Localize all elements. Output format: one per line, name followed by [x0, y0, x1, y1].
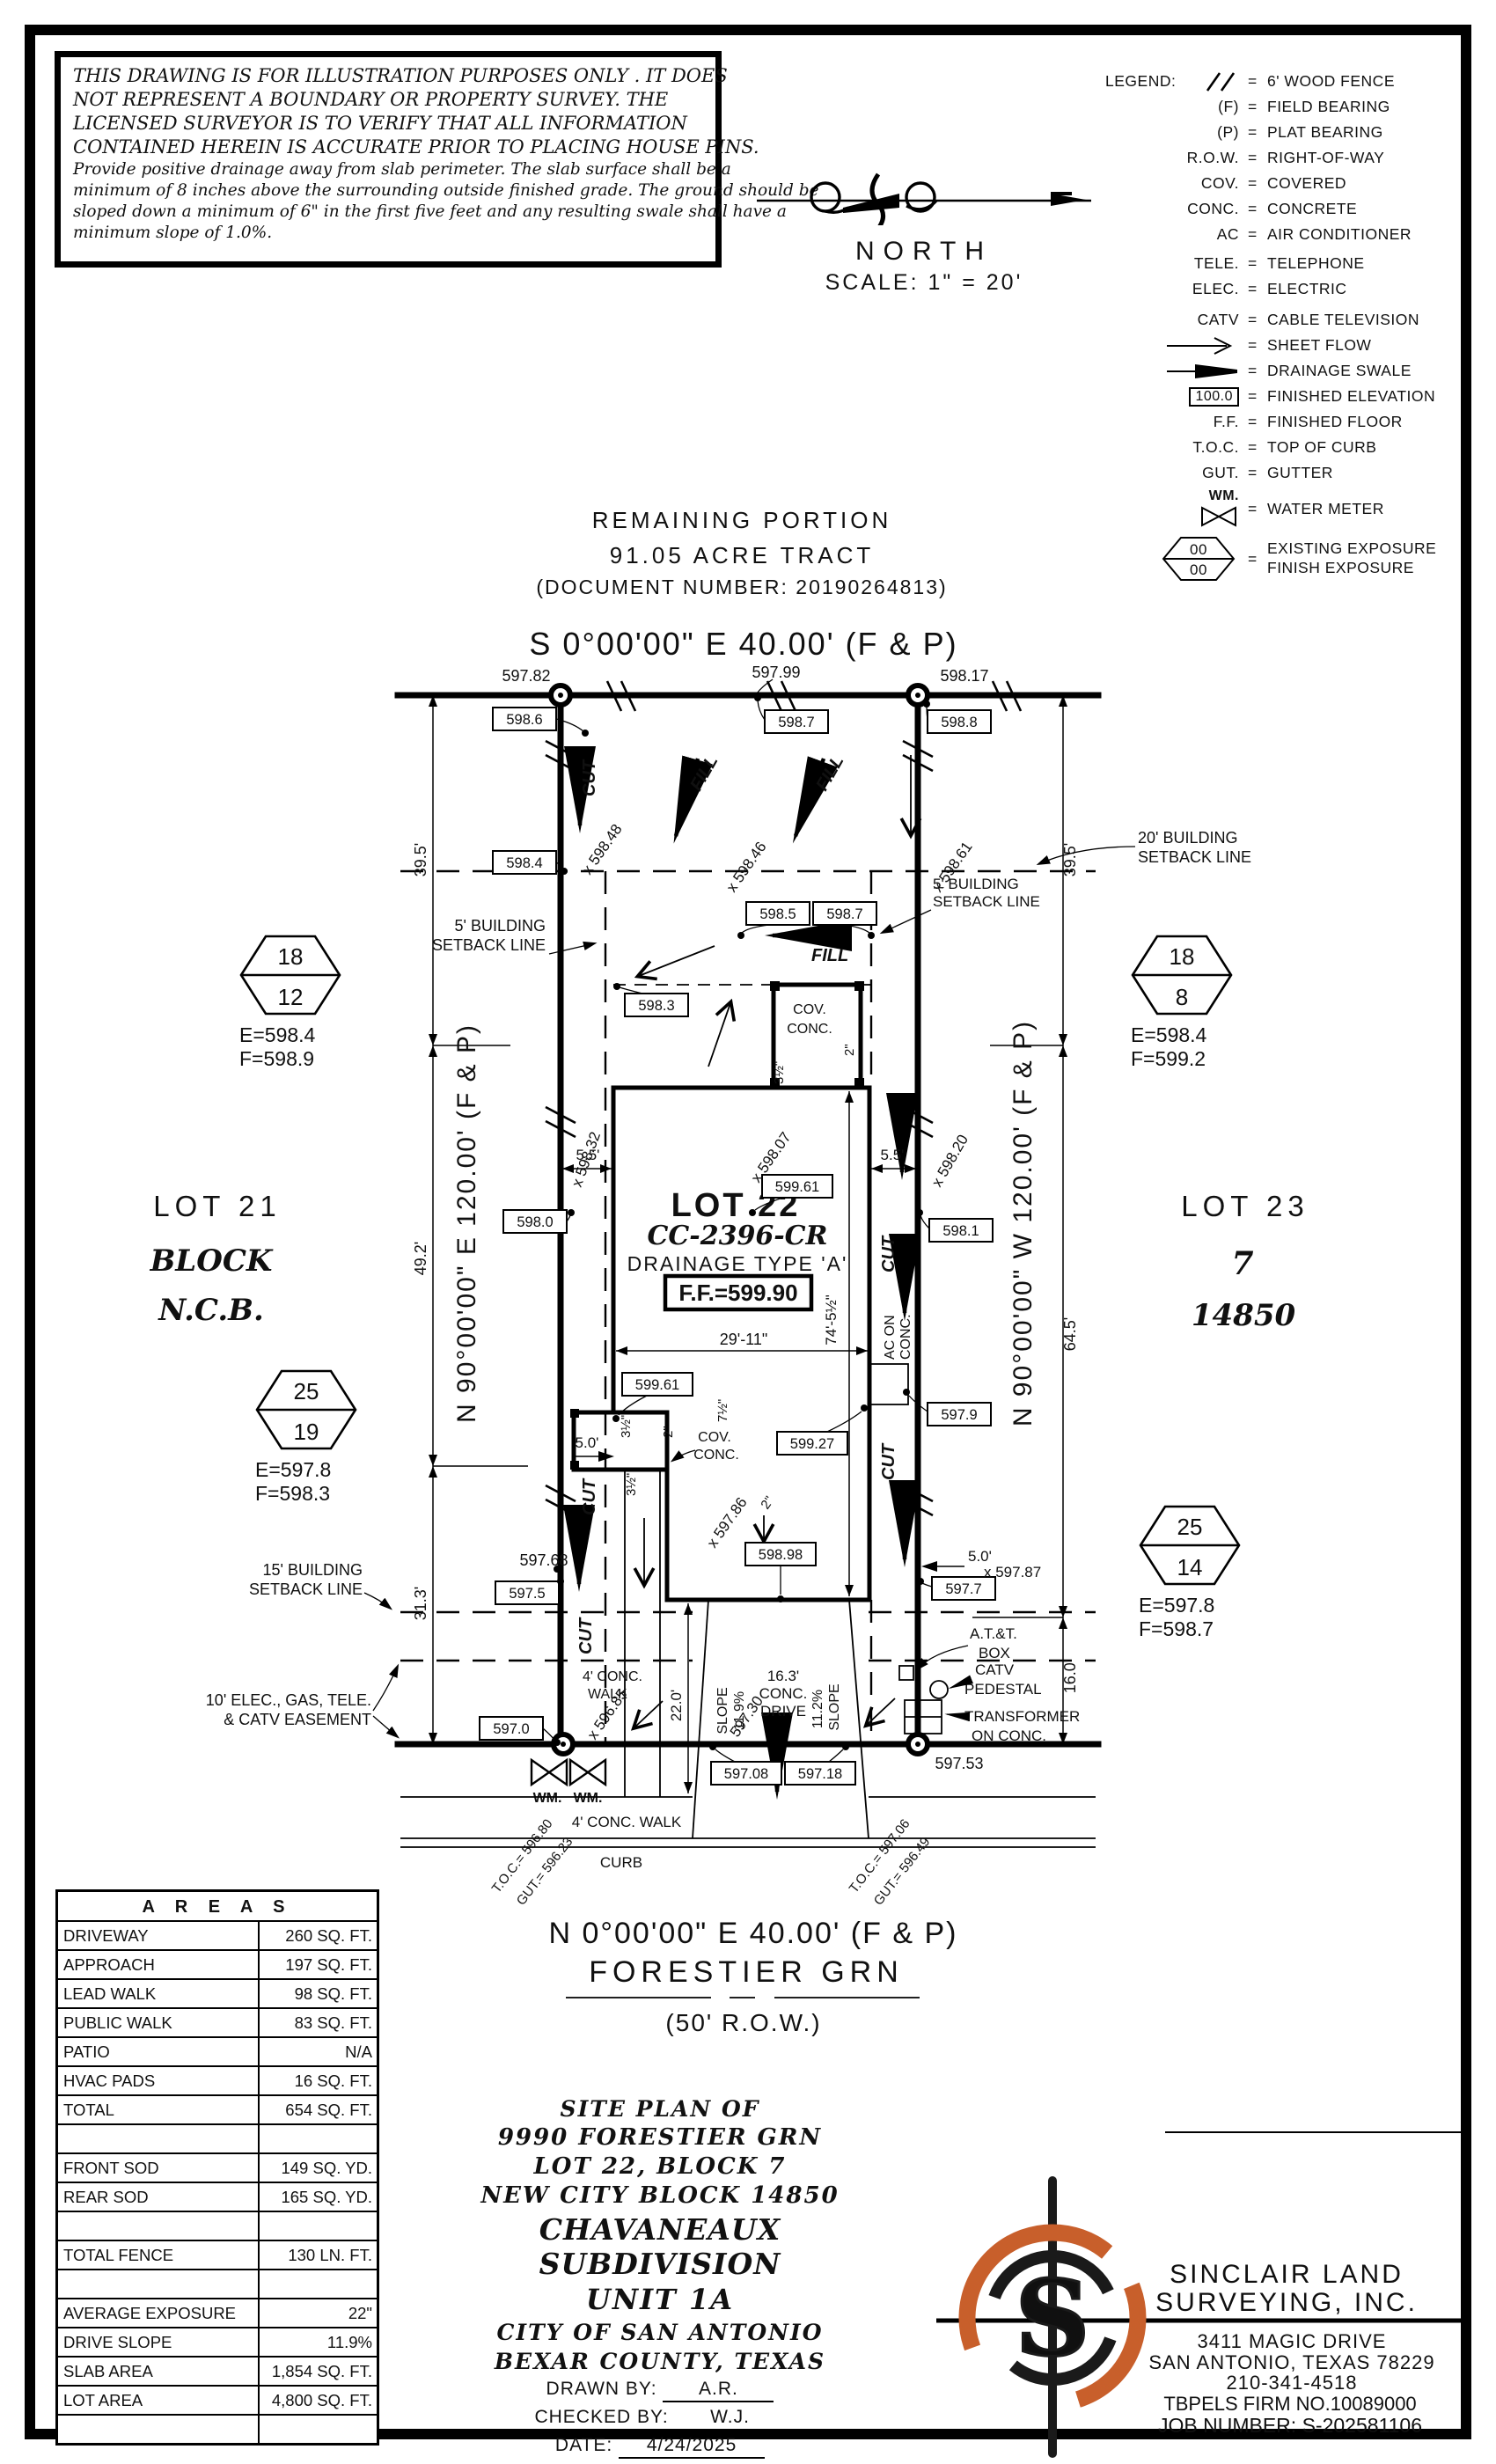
svg-text:E=597.8: E=597.8	[255, 1458, 331, 1481]
setback-20-rear: 20' BUILDING	[1138, 829, 1237, 847]
disclaimer-line: minimum slope of 1.0%.	[73, 223, 705, 244]
legend-label: DRAINAGE SWALE	[1267, 362, 1464, 380]
elev-599-61b: 599.61	[635, 1377, 679, 1393]
setback-5-left2: SETBACK LINE	[432, 936, 546, 954]
north-arrow-icon	[748, 167, 1100, 225]
firm-address1: 3411 MAGIC DRIVE	[1198, 2330, 1387, 2352]
sinclair-logo: S	[943, 2181, 1162, 2453]
legend-label: 6' WOOD FENCE	[1267, 72, 1464, 91]
cut-label: CUT	[580, 1478, 599, 1515]
legend-key: CONC.	[1105, 200, 1248, 218]
dim-5-5-right: 5.5'	[881, 1147, 905, 1163]
dim-7-5: 7½"	[715, 1399, 730, 1422]
legend-title: LEGEND:	[1105, 72, 1176, 91]
catv-pedestal-symbol	[930, 1681, 948, 1698]
table-row: SLAB AREA1,854 SQ. FT.	[58, 2358, 377, 2387]
elev-599-61a: 599.61	[775, 1179, 819, 1195]
table-row: HVAC PADS16 SQ. FT.	[58, 2067, 377, 2096]
spot-597-86: x 597.86	[704, 1494, 751, 1551]
legend-key: TELE.	[1105, 254, 1248, 273]
svg-text:8: 8	[1176, 984, 1188, 1010]
spot-598-48: x 598.48	[579, 821, 626, 877]
scale-label: SCALE: 1" = 20'	[748, 270, 1100, 296]
exposure-hex-25-19: 25 19 E=597.8 F=598.3	[255, 1371, 356, 1505]
svg-text:18: 18	[1170, 943, 1195, 970]
bearing-top: S 0°00'00" E 40.00' (F & P)	[529, 626, 957, 662]
legend-key: F.F.	[1105, 413, 1248, 431]
setback-5-right: 5' BUILDING	[933, 876, 1019, 892]
fence-hatches	[546, 681, 1021, 1515]
elev-598-7b: 598.7	[826, 906, 862, 922]
dim-5-5-left: 5.5'	[576, 1147, 600, 1163]
disclaimer-line: CONTAINED HEREIN IS ACCURATE PRIOR TO PL…	[73, 136, 705, 159]
exposure-hex-25-14: 25 14 E=597.8 F=598.7	[1139, 1507, 1239, 1640]
street-row: (50' R.O.W.)	[665, 2009, 821, 2036]
equals: =	[1248, 72, 1267, 91]
elev-598-8: 598.8	[941, 715, 977, 730]
unit-label: UNIT 1A	[414, 2283, 906, 2316]
svg-text:19: 19	[294, 1419, 319, 1445]
setback-15-front: 15' BUILDING	[263, 1561, 363, 1579]
legend-label: SHEET FLOW	[1267, 336, 1464, 355]
table-row-empty	[58, 2416, 377, 2443]
wm-label2: WM.	[574, 1791, 603, 1806]
exposure-hex-18-12: 18 12 E=598.4 F=598.9	[239, 936, 340, 1070]
setback-5-left: 5' BUILDING	[455, 917, 546, 935]
firm-phone: 210-341-4518	[1226, 2372, 1357, 2394]
bearing-bottom: N 0°00'00" E 40.00' (F & P)	[549, 1917, 958, 1950]
elev-598-98: 598.98	[759, 1547, 803, 1563]
elev-597-08: 597.08	[724, 1766, 768, 1782]
patio-conc-label: CONC.	[787, 1022, 832, 1037]
wm-label: WM.	[533, 1791, 562, 1806]
elev-599-27: 599.27	[790, 1436, 834, 1452]
dim-74-5: 74'-5½"	[823, 1294, 840, 1345]
svg-text:F=598.3: F=598.3	[255, 1482, 330, 1505]
cut-label: CUT	[580, 759, 599, 796]
water-meters: WM. WM.	[532, 1760, 605, 1806]
county-label: BEXAR COUNTY, TEXAS	[414, 2349, 906, 2374]
disclaimer-line: minimum of 8 inches above the surroundin…	[73, 180, 705, 202]
legend-label: FINISHED ELEVATION	[1267, 387, 1464, 406]
transformer-label: TRANSFORMER	[964, 1708, 1080, 1725]
setback-5-right2: SETBACK LINE	[933, 893, 1040, 910]
lead-walk	[625, 1470, 660, 1797]
svg-text:E=598.4: E=598.4	[1131, 1023, 1207, 1046]
lot-21-label: LOT 21	[153, 1190, 281, 1222]
disclaimer-line: sloped down a minimum of 6" in the first…	[73, 202, 705, 223]
catv-label2: PEDESTAL	[964, 1681, 1042, 1698]
legend-key: COV.	[1105, 174, 1248, 193]
table-row: LOT AREA4,800 SQ. FT.	[58, 2387, 377, 2416]
dim-49-2: 49.2'	[412, 1242, 429, 1275]
catv-label: CATV	[975, 1661, 1015, 1678]
dim-5-0-porch: 5.0'	[576, 1434, 599, 1451]
porch-cov-label: COV.	[698, 1430, 731, 1445]
dim-5-0-right: 5.0'	[968, 1548, 992, 1565]
drive-drive: DRIVE	[760, 1703, 806, 1720]
checked-by-row: CHECKED BY: W.J.	[414, 2407, 906, 2431]
site-plan-drawing: REMAINING PORTION 91.05 ACRE TRACT (DOCU…	[0, 493, 1496, 2077]
table-row: REAR SOD165 SQ. YD.	[58, 2183, 377, 2212]
elev-598-3: 598.3	[638, 998, 674, 1014]
dim-2c: 2"	[842, 1044, 857, 1056]
drawn-by-value: A.R.	[663, 2379, 774, 2402]
legend-label: FIELD BEARING	[1267, 98, 1464, 116]
legend-label: CONCRETE	[1267, 200, 1464, 218]
legend-label: CABLE TELEVISION	[1267, 311, 1464, 329]
legend-key: T.O.C.	[1105, 438, 1248, 457]
cut-label: CUT	[879, 1442, 898, 1480]
legend-key: (F)	[1105, 98, 1248, 116]
table-row-empty	[58, 2270, 377, 2299]
setback-15-front2: SETBACK LINE	[249, 1580, 363, 1598]
table-row: DRIVE SLOPE11.9%	[58, 2328, 377, 2358]
slope-word-left: SLOPE	[715, 1687, 730, 1734]
job-number: JOB NUMBER: S-202581106	[1158, 2414, 1422, 2437]
tract-line: REMAINING PORTION	[592, 507, 892, 533]
checked-by-value: W.J.	[675, 2407, 786, 2431]
att-label: A.T.&T.	[970, 1625, 1017, 1642]
title-line: SITE PLAN OF	[414, 2096, 906, 2122]
slope-word-right: SLOPE	[827, 1683, 842, 1730]
slope-11-9: 11.9%	[732, 1691, 747, 1730]
tract-document-number: (DOCUMENT NUMBER: 20190264813)	[536, 576, 947, 598]
remaining-tract-heading: REMAINING PORTION 91.05 ACRE TRACT (DOCU…	[536, 507, 947, 598]
lot-22-drainage: DRAINAGE TYPE 'A'	[627, 1252, 848, 1275]
setback-20-rear2: SETBACK LINE	[1138, 848, 1251, 866]
table-row: LEAD WALK98 SQ. FT.	[58, 1980, 377, 2009]
spot-598-17: 598.17	[940, 667, 988, 685]
ac-on-conc-label2: CONC.	[898, 1314, 913, 1360]
elev-598-4: 598.4	[506, 855, 542, 871]
finished-elevation-icon: 100.0	[1189, 387, 1239, 407]
block-7-label: 7	[1231, 1245, 1253, 1282]
legend-key: AC	[1105, 225, 1248, 244]
drawn-by-row: DRAWN BY: A.R.	[414, 2379, 906, 2402]
spot-597-87: x 597.87	[984, 1564, 1041, 1580]
table-row: PATION/A	[58, 2038, 377, 2067]
dim-39-5-left: 39.5'	[412, 843, 429, 876]
lead-walk-label: 4' CONC.	[583, 1669, 642, 1684]
dim-2b: 2"	[758, 1493, 777, 1512]
dim-3-5c: 3½"	[772, 1061, 787, 1084]
legend-label: GUTTER	[1267, 464, 1464, 482]
finished-floor-elevation: F.F.=599.90	[678, 1280, 797, 1306]
svg-text:25: 25	[294, 1378, 319, 1404]
toc-right: T.O.C.= 597.06	[847, 1816, 913, 1896]
elev-598-6: 598.6	[506, 712, 542, 728]
easement-label: 10' ELEC., GAS, TELE.	[206, 1691, 371, 1709]
elev-597-7: 597.7	[945, 1581, 981, 1597]
lead-walk-label2: WALK	[588, 1687, 627, 1702]
firm-address2: SAN ANTONIO, TEXAS 78229	[1148, 2351, 1434, 2373]
porch-conc-label: CONC.	[693, 1448, 739, 1463]
fill-label: FILL	[811, 946, 848, 965]
spot-597-82: 597.82	[502, 667, 550, 685]
legend-label: AIR CONDITIONER	[1267, 225, 1464, 244]
north-scale-block: NORTH SCALE: 1" = 20'	[748, 167, 1100, 296]
spot-597-68: 597.68	[519, 1551, 568, 1569]
disclaimer-line: NOT REPRESENT A BOUNDARY OR PROPERTY SUR…	[73, 88, 705, 112]
svg-text:14: 14	[1177, 1554, 1203, 1580]
ncb-label: N.C.B.	[158, 1293, 264, 1328]
areas-title: A R E A S	[58, 1892, 377, 1922]
title-line: NEW CITY BLOCK 14850	[414, 2182, 906, 2209]
firm-name: SINCLAIR LAND	[1170, 2260, 1404, 2289]
dim-29-11: 29'-11"	[720, 1331, 768, 1348]
elev-598-7: 598.7	[778, 715, 814, 730]
public-walk-label: 4' CONC. WALK	[572, 1814, 682, 1830]
firm-number: TBPELS FIRM NO.10089000	[1163, 2393, 1416, 2415]
disclaimer-line: Provide positive drainage away from slab…	[73, 159, 705, 180]
drive-16-3: 16.3'	[767, 1668, 799, 1684]
svg-text:E=598.4: E=598.4	[239, 1023, 316, 1046]
lot-22-code: CC-2396-CR	[648, 1221, 828, 1251]
disclaimer-line: LICENSED SURVEYOR IS TO VERIFY THAT ALL …	[73, 112, 705, 136]
att-label2: BOX	[979, 1645, 1010, 1661]
svg-text:18: 18	[278, 943, 304, 970]
dim-2a: 2"	[661, 1426, 676, 1438]
tract-line: 91.05 ACRE TRACT	[610, 542, 875, 568]
disclaimer-note: THIS DRAWING IS FOR ILLUSTRATION PURPOSE…	[55, 51, 722, 268]
site-plan-page: THIS DRAWING IS FOR ILLUSTRATION PURPOSE…	[0, 0, 1496, 2464]
legend-label: FINISHED FLOOR	[1267, 413, 1464, 431]
bearing-right: N 90°00'00" W 120.00' (F & P)	[1008, 1020, 1038, 1426]
legend-key: (P)	[1105, 123, 1248, 142]
elev-598-0: 598.0	[517, 1214, 553, 1230]
firm-block: S SINCLAIR LAND SURVEYING, INC. 3411 MAG…	[933, 2112, 1471, 2464]
drainage-swale-icon	[1165, 363, 1239, 380]
dim-16-0: 16.0'	[1061, 1660, 1079, 1693]
legend-label: COVERED	[1267, 174, 1464, 193]
spot-597-99: 597.99	[752, 664, 800, 681]
table-row: TOTAL FENCE130 LN. FT.	[58, 2241, 377, 2270]
legend-key: ELEC.	[1105, 280, 1248, 298]
spot-598-20: x 598.20	[928, 1132, 972, 1190]
curb-label: CURB	[600, 1854, 642, 1871]
elev-597-0: 597.0	[493, 1721, 529, 1737]
date-row: DATE: 4/24/2025	[414, 2435, 906, 2459]
svg-text:F=599.2: F=599.2	[1131, 1047, 1206, 1070]
elev-598-1: 598.1	[942, 1223, 979, 1239]
ncb-14850-label: 14850	[1192, 1298, 1296, 1333]
patio-cov-label: COV.	[793, 1002, 826, 1017]
dim-3-5a: 3½"	[619, 1415, 634, 1438]
table-row: APPROACH197 SQ. FT.	[58, 1951, 377, 1980]
slope-11-2: 11.2%	[810, 1690, 825, 1728]
exposure-hex-18-8: 18 8 E=598.4 F=599.2	[1131, 936, 1231, 1070]
table-row: FRONT SOD149 SQ. YD.	[58, 2154, 377, 2183]
wood-fence-icon	[1202, 71, 1239, 92]
att-box-symbol	[899, 1666, 913, 1680]
easement-label2: & CATV EASEMENT	[224, 1711, 371, 1728]
transformer-label2: ON CONC.	[972, 1727, 1046, 1744]
cut-label: CUT	[576, 1617, 596, 1654]
table-row-empty	[58, 2125, 377, 2154]
disclaimer-line: THIS DRAWING IS FOR ILLUSTRATION PURPOSE…	[73, 64, 705, 88]
dim-22-0: 22.0'	[668, 1690, 685, 1721]
legend-key: GUT.	[1105, 464, 1248, 482]
block-label: BLOCK	[150, 1243, 274, 1279]
date-value: 4/24/2025	[619, 2435, 765, 2459]
elev-597-18: 597.18	[798, 1766, 842, 1782]
elev-597-9: 597.9	[941, 1407, 977, 1423]
table-row: DRIVEWAY260 SQ. FT.	[58, 1922, 377, 1951]
svg-text:25: 25	[1177, 1514, 1203, 1540]
title-line: 9990 FORESTIER GRN	[414, 2124, 906, 2151]
bearing-left: N 90°00'00" E 120.00' (F & P)	[452, 1023, 481, 1423]
ac-on-conc-label: AC ON	[883, 1315, 898, 1360]
legend-label: TELEPHONE	[1267, 254, 1464, 273]
elev-598-5: 598.5	[759, 906, 796, 922]
legend-label: PLAT BEARING	[1267, 123, 1464, 142]
dim-64-5: 64.5'	[1061, 1317, 1079, 1351]
svg-text:F=598.9: F=598.9	[239, 1047, 314, 1070]
table-row: PUBLIC WALK83 SQ. FT.	[58, 2009, 377, 2038]
table-row: TOTAL654 SQ. FT.	[58, 2096, 377, 2125]
svg-text:E=597.8: E=597.8	[1139, 1594, 1214, 1617]
table-row-empty	[58, 2212, 377, 2241]
title-line: LOT 22, BLOCK 7	[414, 2153, 906, 2180]
spot-598-46: x 598.46	[723, 839, 770, 895]
city-label: CITY OF SAN ANTONIO	[414, 2320, 906, 2345]
legend-label: ELECTRIC	[1267, 280, 1464, 298]
title-block: SITE PLAN OF 9990 FORESTIER GRN LOT 22, …	[414, 2096, 906, 2459]
table-row: AVERAGE EXPOSURE22"	[58, 2299, 377, 2328]
cut-label: CUT	[879, 1235, 898, 1272]
north-label: NORTH	[748, 237, 1100, 267]
subdivision-name: CHAVANEAUX SUBDIVISION	[414, 2212, 906, 2281]
dim-39-5-right: 39.5'	[1061, 843, 1079, 876]
firm-name2: SURVEYING, INC.	[1155, 2288, 1418, 2317]
street-area: 4' CONC. WALK CURB T.O.C.= 596.80 GUT.= …	[400, 1797, 1096, 2036]
lot-labels: LOT 22 CC-2396-CR DRAINAGE TYPE 'A' F.F.…	[627, 1187, 848, 1309]
legend-key: R.O.W.	[1105, 149, 1248, 167]
ac-pad	[869, 1364, 908, 1404]
toc-left: T.O.C.= 596.80	[489, 1816, 556, 1896]
svg-text:F=598.7: F=598.7	[1139, 1617, 1214, 1640]
legend-label: TOP OF CURB	[1267, 438, 1464, 457]
spot-597-53: 597.53	[935, 1755, 983, 1772]
dim-3-5b: 3½"	[624, 1473, 639, 1496]
elev-597-5: 597.5	[509, 1586, 545, 1602]
areas-table: A R E A S DRIVEWAY260 SQ. FT. APPROACH19…	[55, 1889, 379, 2446]
drive-conc: CONC.	[759, 1685, 808, 1702]
logo-letter: S	[1015, 2257, 1089, 2380]
lot-23-label: LOT 23	[1181, 1190, 1309, 1222]
street-name: FORESTIER GRN	[589, 1955, 904, 1989]
legend-key: CATV	[1105, 311, 1248, 329]
svg-text:12: 12	[278, 984, 304, 1010]
legend-label: RIGHT-OF-WAY	[1267, 149, 1464, 167]
sheet-flow-icon	[1165, 336, 1239, 356]
